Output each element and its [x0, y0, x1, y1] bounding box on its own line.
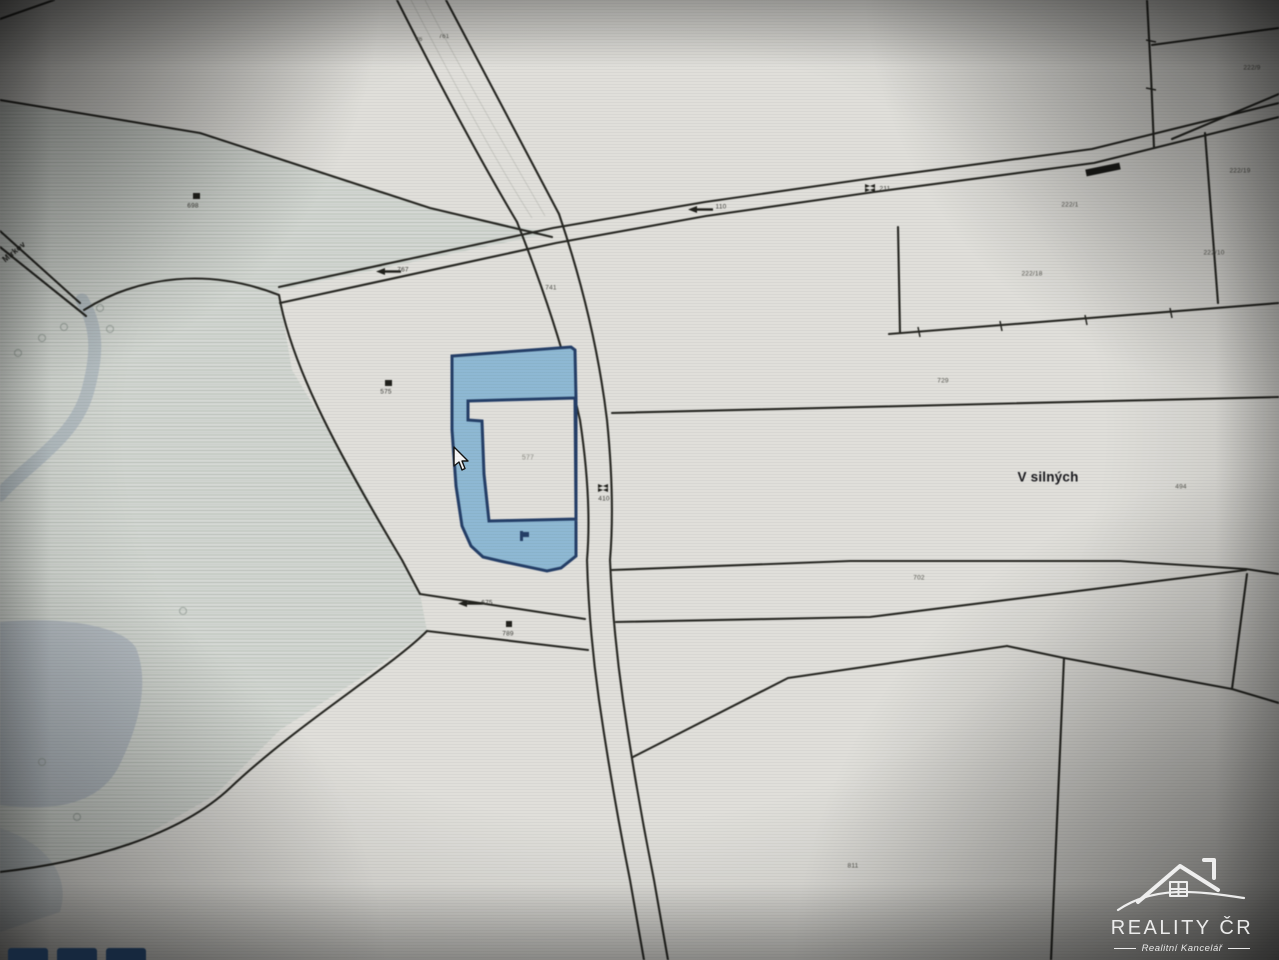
cadastral-map[interactable]: V silných5775756987894102111107676757417… [0, 0, 1279, 960]
building-symbol [193, 193, 200, 199]
watermark-subtitle: Realitní Kancelář [1142, 943, 1223, 954]
cutoff-text-fragment [57, 948, 97, 960]
house-logo-icon [1116, 852, 1248, 916]
screen-photo: V silných5775756987894102111107676757417… [0, 0, 1279, 960]
cutoff-text-fragment [8, 948, 48, 960]
watermark-rule [1228, 948, 1250, 949]
watermark-title: REALITY ČR [1097, 917, 1267, 940]
building-symbol [385, 380, 392, 386]
watermark: REALITY ČR Realitní Kancelář [1097, 852, 1267, 954]
cutoff-text-fragment [106, 948, 146, 960]
building-symbol [506, 621, 512, 627]
map-canvas[interactable] [0, 0, 1279, 960]
mouse-cursor-icon [452, 446, 474, 472]
watermark-rule [1114, 948, 1136, 949]
